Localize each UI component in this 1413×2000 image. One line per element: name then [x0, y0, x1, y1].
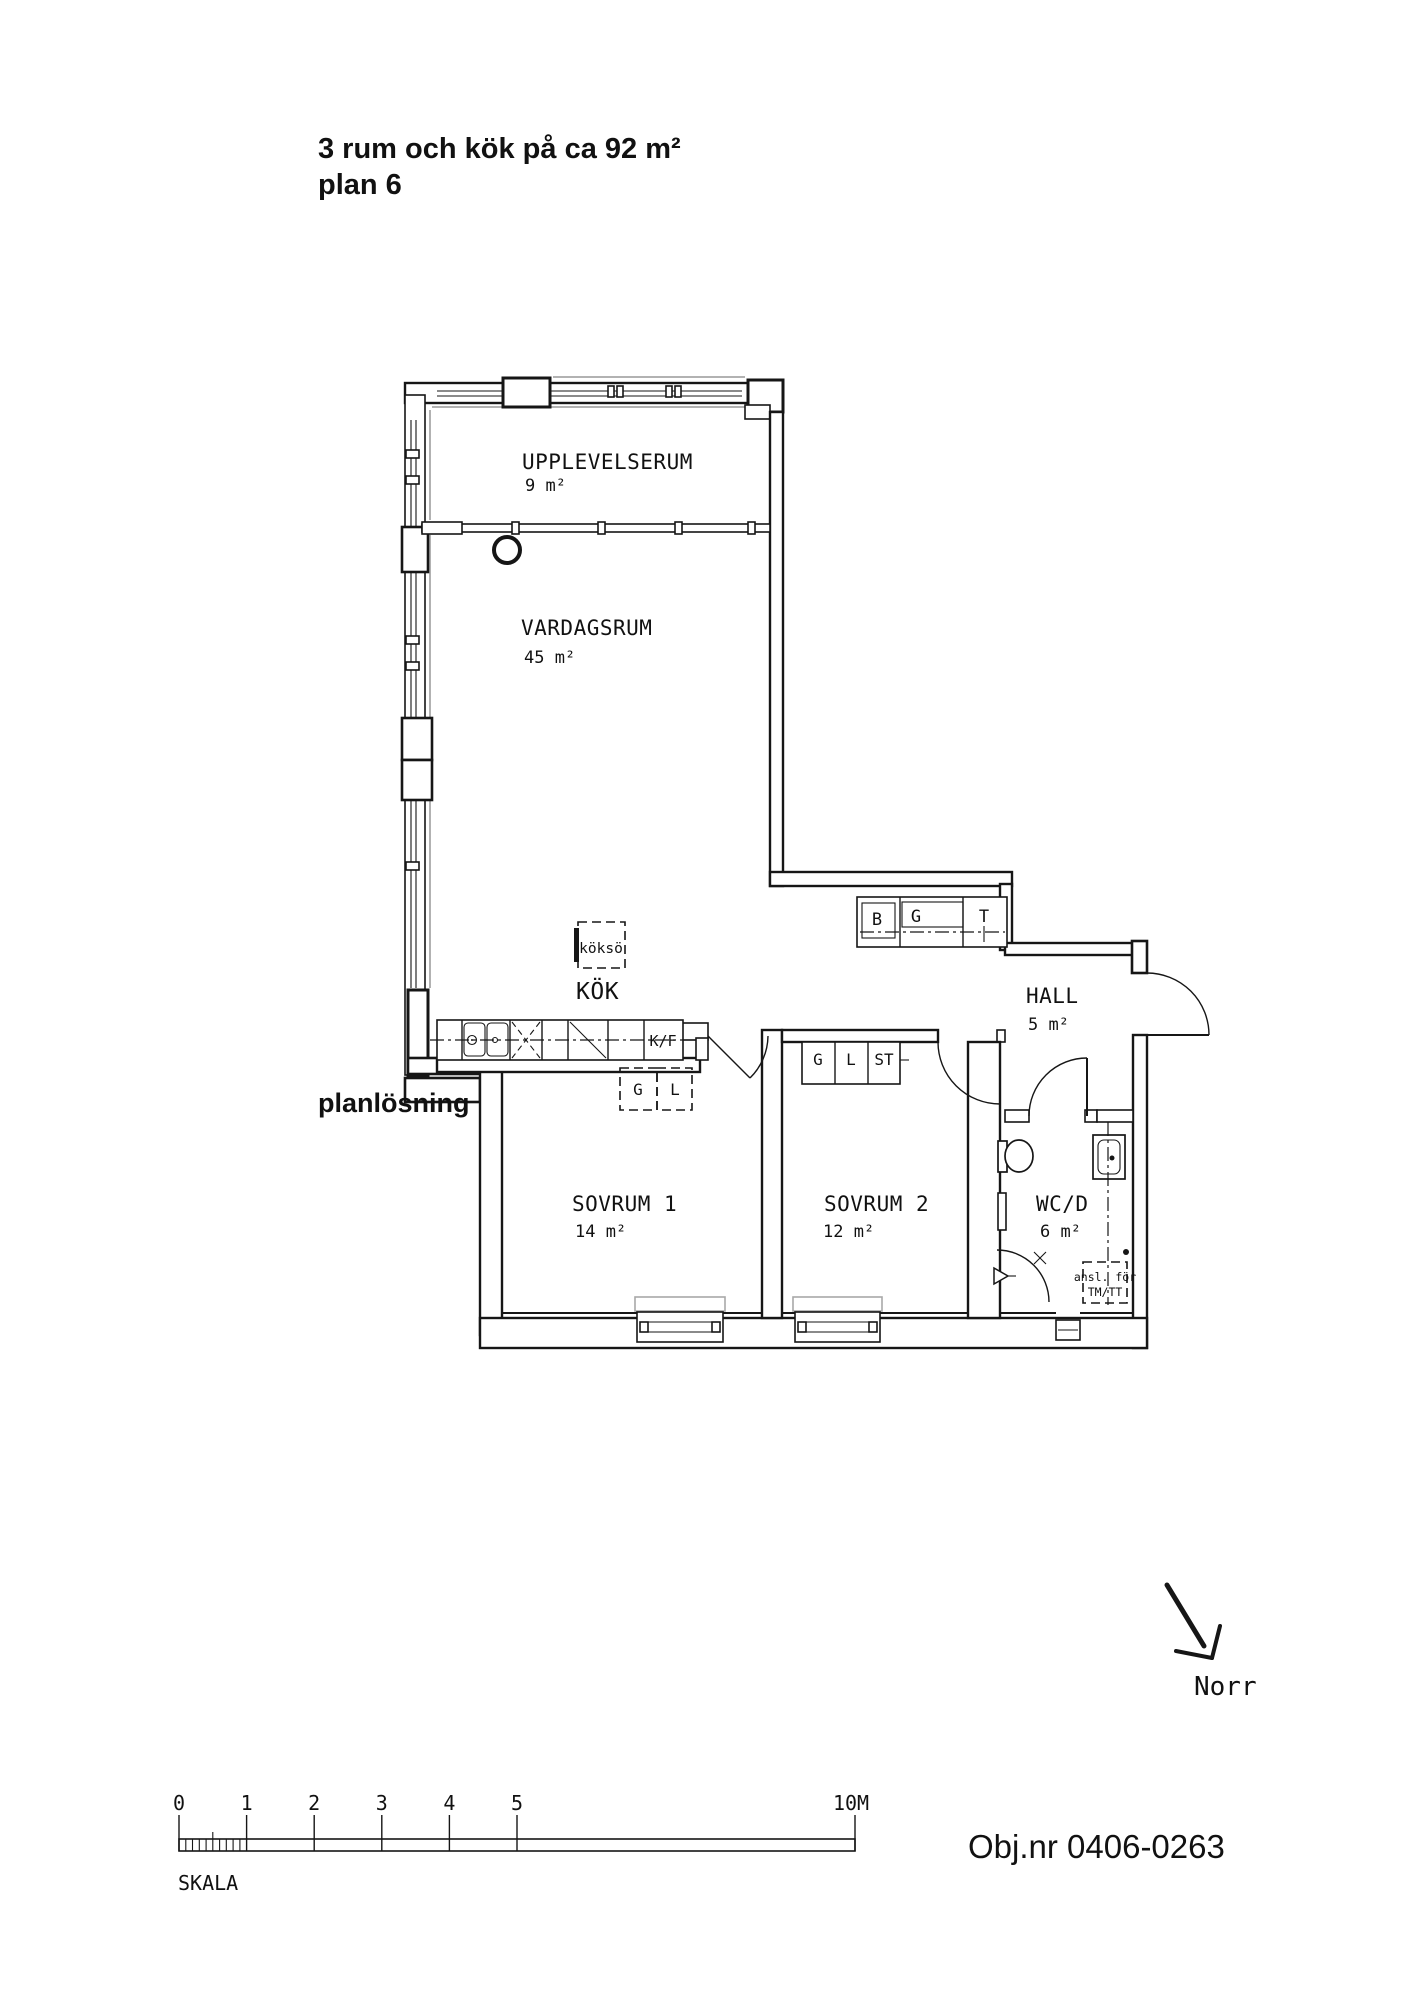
room-area-vardagsrum: 45 m²	[524, 648, 575, 668]
scale-tick-0: 0	[173, 1791, 185, 1815]
object-number: Obj.nr 0406-0263	[968, 1828, 1225, 1865]
floorplan-page: 3 rum och kök på ca 92 m² plan 6	[0, 0, 1413, 2000]
column	[494, 537, 520, 563]
closet2-st-label: ST	[874, 1050, 894, 1069]
room-label-sovrum2: SOVRUM 2	[824, 1192, 929, 1216]
closet-b-label: B	[872, 910, 882, 930]
room-label-wcd: WC/D	[1036, 1192, 1089, 1216]
cabinet-g-label: G	[633, 1080, 643, 1099]
kitchen-island-label: köksö	[579, 941, 623, 957]
cabinet-l-label: L	[670, 1080, 680, 1099]
room-label-sovrum1: SOVRUM 1	[572, 1192, 677, 1216]
hall-closet: B G T	[857, 897, 1007, 947]
closet2-l-label: L	[846, 1050, 856, 1069]
room-area-hall: 5 m²	[1028, 1015, 1069, 1035]
scale-tick-4: 4	[443, 1791, 455, 1815]
scale-tick-5: 5	[511, 1791, 523, 1815]
toilet	[998, 1140, 1033, 1172]
page-title: 3 rum och kök på ca 92 m²	[318, 133, 681, 165]
closet-g-label: G	[911, 907, 921, 927]
room-label-upplevelserum: UPPLEVELSERUM	[522, 450, 693, 474]
closet2-g-label: G	[813, 1050, 823, 1069]
drawing-caption: planlösning	[318, 1088, 470, 1118]
wall-pilaster	[998, 1193, 1006, 1230]
scale-end-label: 10M	[833, 1791, 869, 1815]
scale-tick-2: 2	[308, 1791, 320, 1815]
floorplan-drawing: 3 rum och kök på ca 92 m² plan 6	[0, 0, 1413, 2000]
room-label-vardagsrum: VARDAGSRUM	[521, 616, 652, 640]
washbasin	[1093, 1135, 1125, 1179]
room-area-wcd: 6 m²	[1040, 1222, 1081, 1242]
room-area-upplevelserum: 9 m²	[525, 476, 566, 496]
room-area-sovrum1: 14 m²	[575, 1222, 626, 1242]
page-subtitle: plan 6	[318, 169, 402, 201]
scale-label: SKALA	[178, 1871, 238, 1895]
fridge-freezer-label: K/F	[649, 1032, 676, 1050]
north-label: Norr	[1194, 1672, 1257, 1702]
room-label-hall: HALL	[1026, 984, 1079, 1008]
vent-box	[503, 378, 550, 407]
kitchen-counter: K/F	[430, 1020, 683, 1060]
washer-note-line1: ansl. för	[1074, 1270, 1136, 1284]
scale-tick-3: 3	[376, 1791, 388, 1815]
scale-tick-1: 1	[241, 1791, 253, 1815]
bedroom2-closets: G L ST	[802, 1042, 909, 1084]
window-wcd	[1056, 1320, 1080, 1340]
washer-note-line2: TM/TT	[1088, 1285, 1123, 1299]
closet-t-label: T	[979, 907, 989, 927]
room-label-kok: KÖK	[576, 977, 619, 1005]
room-area-sovrum2: 12 m²	[823, 1222, 874, 1242]
